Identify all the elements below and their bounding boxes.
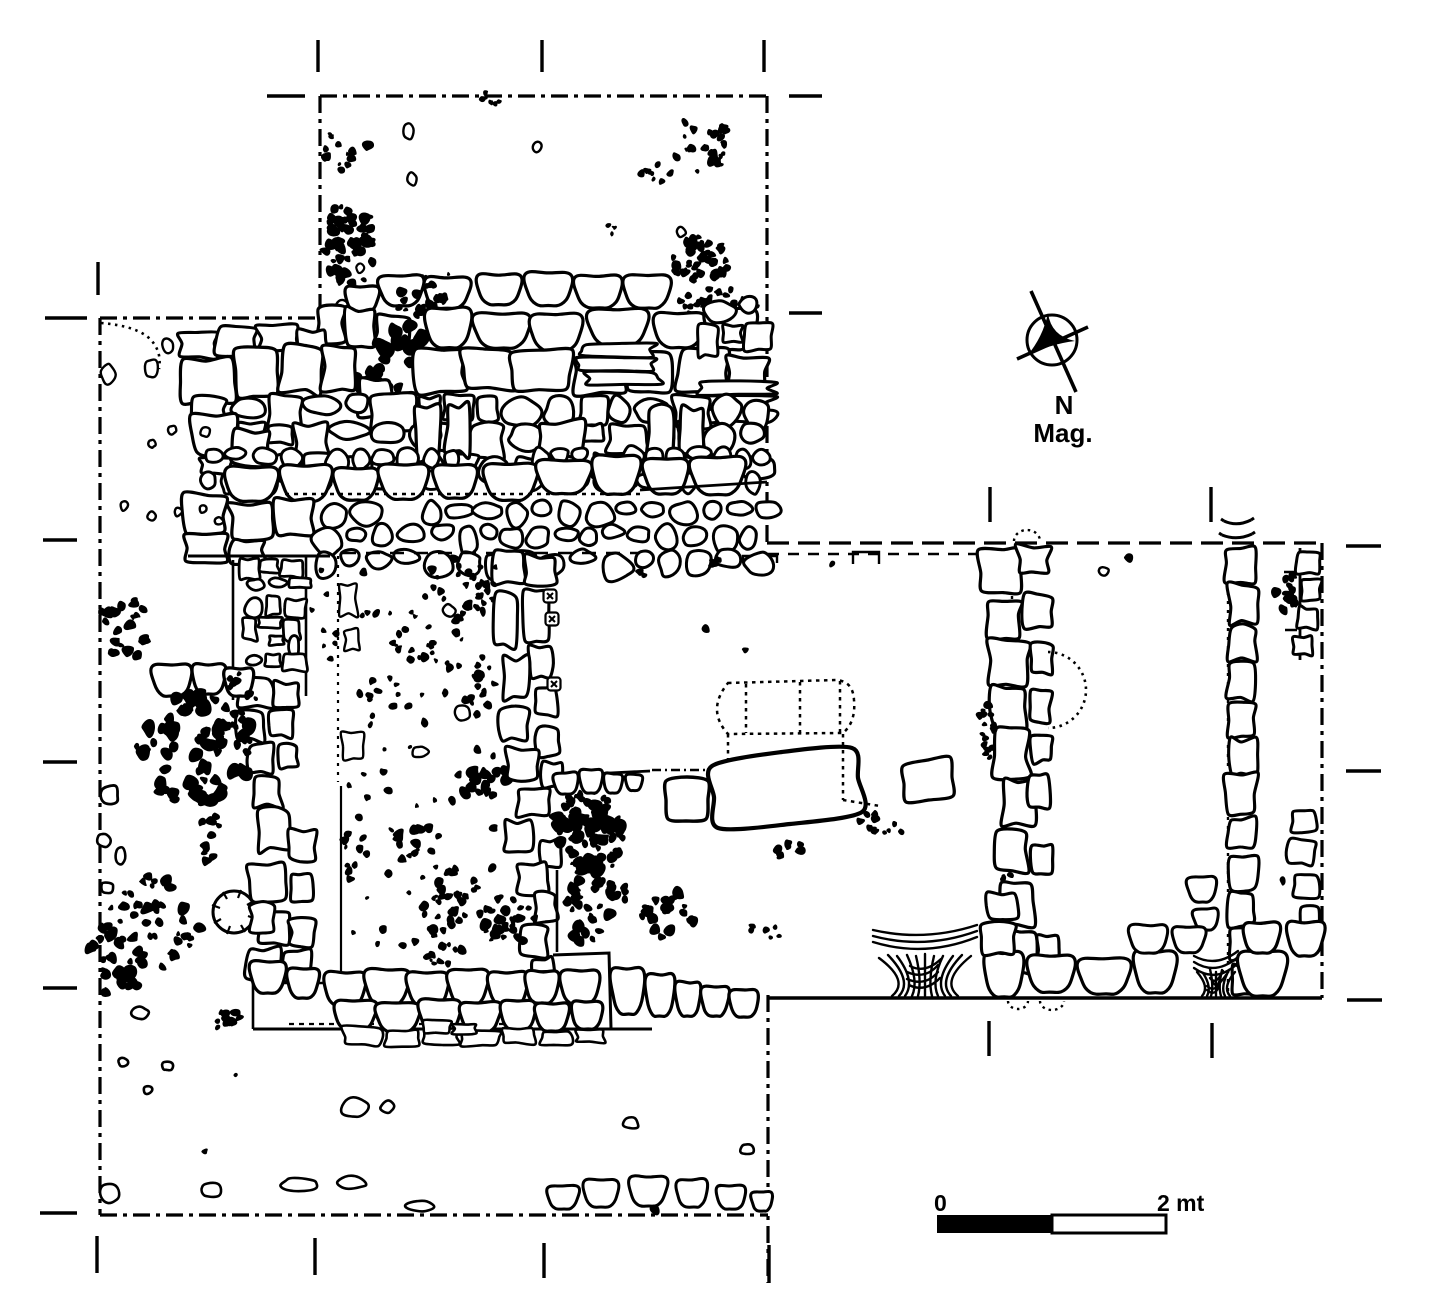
svg-text:Mag.: Mag. (1033, 418, 1092, 448)
svg-text:2 mt: 2 mt (1157, 1190, 1205, 1216)
svg-text:0: 0 (934, 1190, 947, 1216)
svg-text:N: N (1055, 390, 1074, 420)
